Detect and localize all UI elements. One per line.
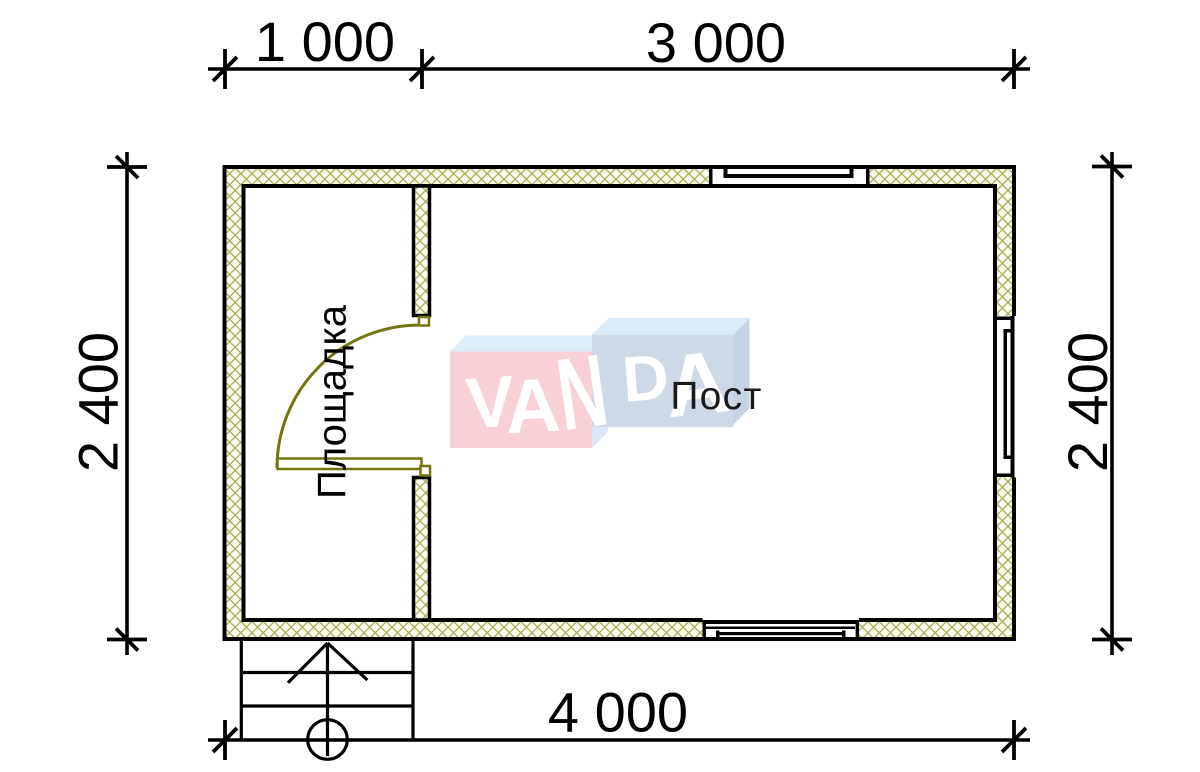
svg-text:4 000: 4 000 [548, 681, 688, 744]
svg-text:3 000: 3 000 [646, 11, 786, 74]
svg-text:2 400: 2 400 [67, 332, 130, 472]
svg-text:Площадка: Площадка [311, 304, 355, 499]
svg-text:A: A [503, 363, 562, 451]
svg-text:1 000: 1 000 [255, 10, 395, 73]
svg-text:2 400: 2 400 [1056, 332, 1119, 472]
svg-text:Пост: Пост [670, 375, 762, 418]
